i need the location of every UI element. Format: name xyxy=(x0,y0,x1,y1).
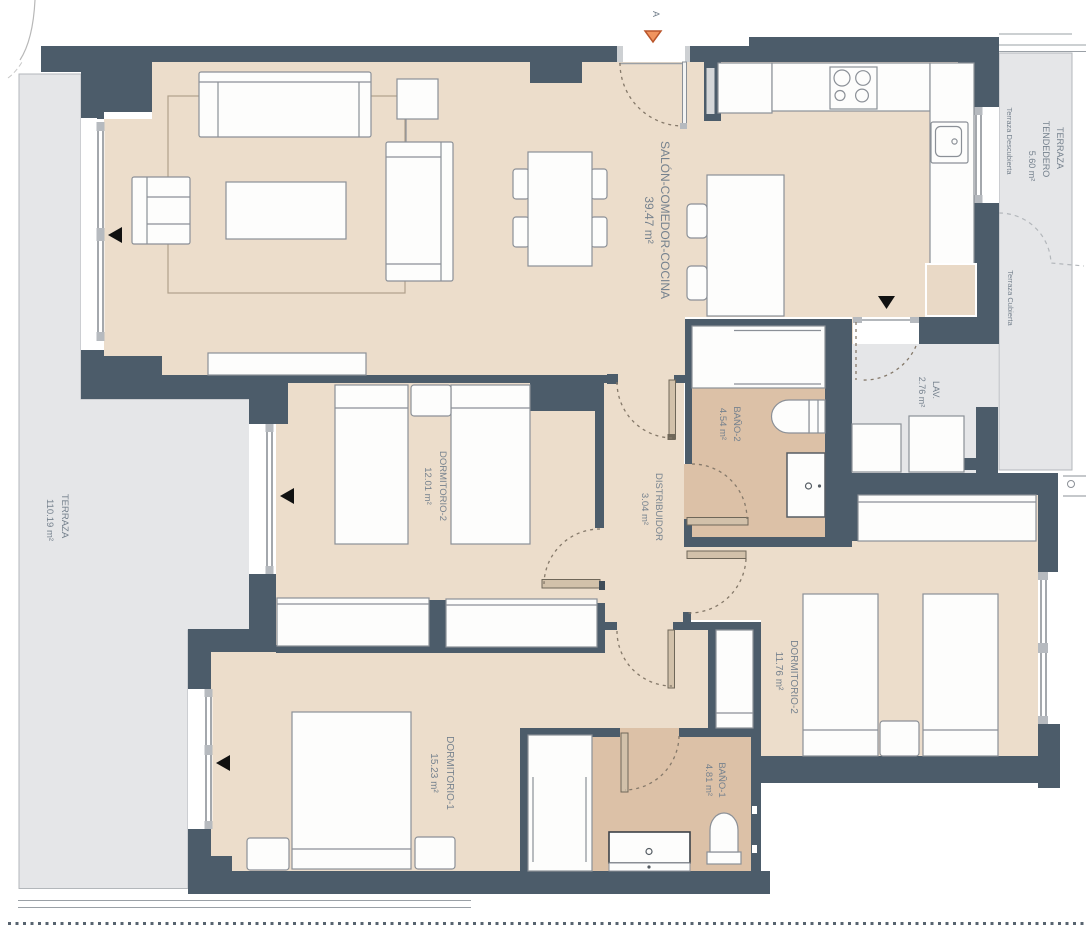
svg-text:4.81 m²: 4.81 m² xyxy=(703,764,714,796)
svg-text:12.01 m²: 12.01 m² xyxy=(422,467,433,505)
svg-text:TERRAZA: TERRAZA xyxy=(1055,127,1065,169)
svg-text:2.76 m²: 2.76 m² xyxy=(917,377,927,408)
svg-text:TERRAZA: TERRAZA xyxy=(59,494,70,539)
svg-text:5.60 m²: 5.60 m² xyxy=(1027,151,1037,182)
svg-text:15.23 m²: 15.23 m² xyxy=(428,753,439,793)
svg-text:LAV.: LAV. xyxy=(931,381,941,399)
svg-text:110.19 m²: 110.19 m² xyxy=(44,499,55,541)
svg-text:DORMITORIO-2: DORMITORIO-2 xyxy=(437,451,448,521)
svg-text:11.76 m²: 11.76 m² xyxy=(773,652,784,691)
svg-text:4.54 m²: 4.54 m² xyxy=(717,408,728,440)
svg-text:3.04 m²: 3.04 m² xyxy=(639,493,650,525)
svg-text:SALÓN-COMEDOR-COCINA: SALÓN-COMEDOR-COCINA xyxy=(658,141,673,299)
svg-text:TENDEDERO: TENDEDERO xyxy=(1041,121,1051,178)
svg-text:39.47 m²: 39.47 m² xyxy=(642,196,656,243)
svg-text:BAÑO-2: BAÑO-2 xyxy=(731,406,742,441)
svg-text:DORMITORIO-1: DORMITORIO-1 xyxy=(444,736,455,810)
svg-text:A: A xyxy=(651,11,661,17)
svg-text:Terraza Cubierta: Terraza Cubierta xyxy=(1006,270,1015,326)
svg-text:DORMITORIO-2: DORMITORIO-2 xyxy=(788,640,799,714)
svg-text:BAÑO-1: BAÑO-1 xyxy=(716,762,727,797)
svg-text:Terraza Descubierta: Terraza Descubierta xyxy=(1005,107,1014,175)
svg-text:DISTRIBUIDOR: DISTRIBUIDOR xyxy=(653,473,664,541)
